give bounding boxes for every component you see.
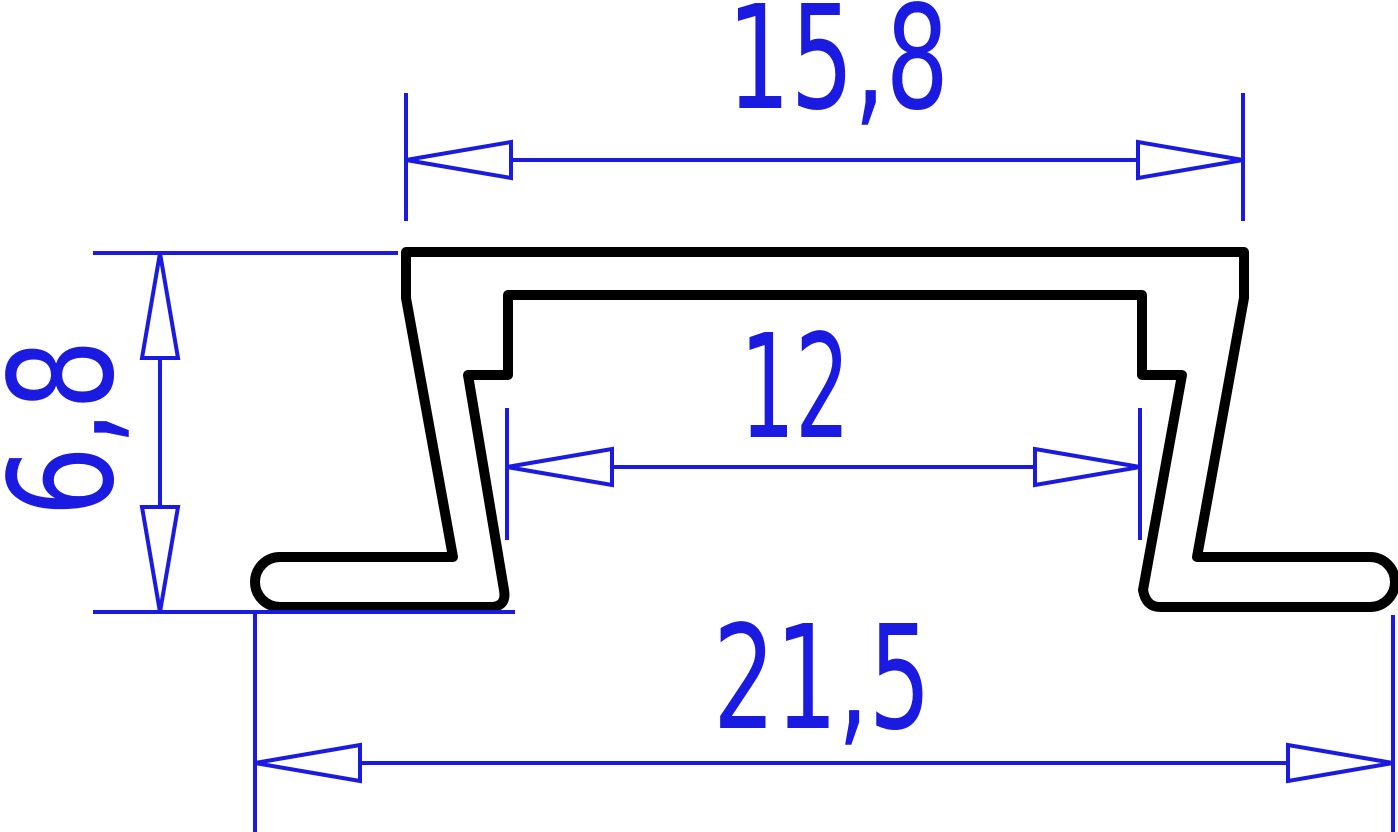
- dimension-label: 21,5: [713, 594, 931, 762]
- dimension-label: 6,8: [0, 339, 146, 517]
- dim-inner-width: 12: [507, 303, 1140, 540]
- arrowhead-right: [1138, 142, 1243, 178]
- arrowhead-up: [142, 253, 178, 358]
- drawing-canvas: 15,8 6,8 12 21,5: [0, 0, 1398, 832]
- technical-drawing: 15,8 6,8 12 21,5: [0, 0, 1398, 832]
- arrowhead-down: [142, 507, 178, 612]
- dimension-label: 12: [740, 303, 850, 471]
- dimension-label: 15,8: [727, 0, 949, 142]
- arrowhead-right: [1288, 745, 1393, 781]
- dim-top-width: 15,8: [406, 0, 1243, 221]
- arrowhead-left: [255, 745, 360, 781]
- dim-bottom-width: 21,5: [255, 594, 1393, 832]
- arrowhead-left: [406, 142, 511, 178]
- arrowhead-right: [1035, 449, 1140, 485]
- arrowhead-left: [507, 449, 612, 485]
